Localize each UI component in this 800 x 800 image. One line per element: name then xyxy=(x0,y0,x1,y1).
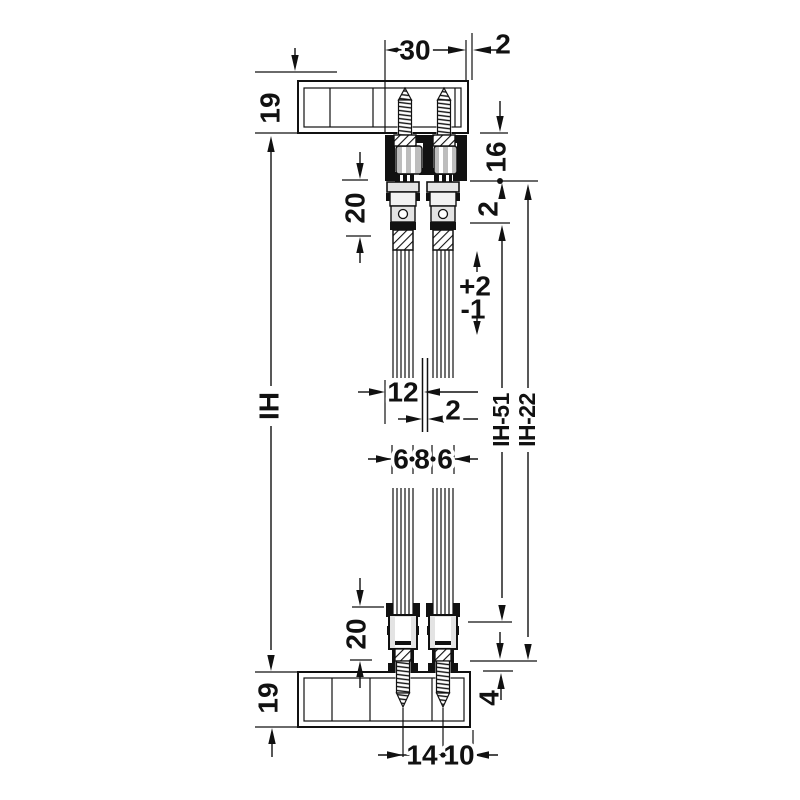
arrow-down-icon xyxy=(496,643,503,659)
dim-inner-height: IH xyxy=(254,136,285,671)
dim-track-height: 16 xyxy=(480,101,512,184)
bottom-screw-left xyxy=(395,649,411,708)
dim-label-track-width: 30 xyxy=(399,35,430,66)
arrow-down-icon xyxy=(356,163,363,179)
dim-dot-terminator xyxy=(440,752,445,757)
dim-label-inner-height: IH xyxy=(254,392,285,420)
dim-bottom-inset: 4 xyxy=(474,632,514,706)
dim-label-screw-spacing: 14 xyxy=(406,740,438,771)
dim-height-adjustment: +2 -1 xyxy=(459,251,491,335)
dim-label-bottom-panel-thickness: 19 xyxy=(253,682,284,713)
arrow-left-icon xyxy=(473,751,489,758)
dim-glass-spacing: 6 8 6 xyxy=(368,444,478,475)
section-drawing: 30 2 19 IH 19 xyxy=(0,0,800,800)
arrow-right-icon xyxy=(369,388,385,395)
dim-label-top-panel-thickness: 19 xyxy=(255,92,286,123)
arrow-right-icon xyxy=(387,751,403,758)
glass-panel-upper-left xyxy=(393,250,413,378)
arrow-up-icon xyxy=(498,225,505,241)
arrow-up-icon xyxy=(356,661,363,677)
arrow-left-icon xyxy=(424,388,440,395)
arrow-right-icon xyxy=(376,455,392,462)
dim-label-glass-right: 6 xyxy=(437,444,453,475)
glass-clamp-left xyxy=(386,182,420,250)
dim-label-track-height: 16 xyxy=(481,141,512,172)
arrow-up-icon xyxy=(356,237,363,253)
bottom-screw-right xyxy=(435,649,451,708)
dim-bottom-panel-thickness: 19 xyxy=(253,682,284,757)
arrow-right-icon xyxy=(448,46,466,54)
dim-top-panel-thickness: 19 xyxy=(255,48,299,124)
dim-label-adjust-minus: -1 xyxy=(461,294,486,325)
top-panel xyxy=(255,72,468,133)
arrow-right-icon xyxy=(406,415,422,422)
glass-panel-upper-right xyxy=(433,250,453,378)
dim-label-door-thickness: 12 xyxy=(387,377,418,408)
glass-clamp-right xyxy=(426,182,460,250)
arrow-up-icon xyxy=(473,251,480,267)
dim-label-ih-minus-22: IH-22 xyxy=(514,393,540,447)
dim-label-top-profile-height: 20 xyxy=(340,192,371,223)
dim-label-track-bottom-gap: 2 xyxy=(473,201,504,217)
arrow-up-icon xyxy=(498,183,505,199)
arrow-down-icon xyxy=(498,605,505,621)
arrow-up-icon xyxy=(497,673,504,689)
door-joint-lines xyxy=(423,358,428,432)
glass-panel-lower-left xyxy=(393,488,413,618)
arrow-down-icon xyxy=(496,116,503,132)
dim-label-wall-gap-top: 2 xyxy=(495,29,511,60)
dim-label-door-gap: 2 xyxy=(445,395,461,426)
arrow-down-icon xyxy=(524,644,531,660)
arrow-left-icon xyxy=(454,455,470,462)
arrow-up-icon xyxy=(268,728,275,744)
dim-label-bottom-inset: 4 xyxy=(474,690,505,706)
arrow-down-icon xyxy=(291,55,298,71)
dim-label-glass-mid: 8 xyxy=(414,444,430,475)
dim-wall-gap-top: 2 xyxy=(472,29,511,81)
arrow-up-icon xyxy=(267,136,274,152)
arrow-down-icon xyxy=(356,590,363,606)
dim-label-ih-minus-51: IH-51 xyxy=(488,392,514,446)
glass-panel-lower-right xyxy=(433,488,453,618)
arrow-down-icon xyxy=(267,655,274,671)
dim-label-edge-distance: 10 xyxy=(443,740,474,771)
arrow-up-icon xyxy=(524,184,531,200)
arrow-left-icon xyxy=(473,46,491,54)
arrow-left-icon xyxy=(428,415,444,422)
dim-label-glass-left: 6 xyxy=(393,444,409,475)
dim-label-bottom-profile-height: 20 xyxy=(341,618,372,649)
technical-drawing-canvas: 30 2 19 IH 19 xyxy=(0,0,800,800)
dim-dot-terminator xyxy=(430,456,435,461)
dim-dot-terminator xyxy=(409,456,414,461)
dim-top-profile-height: 20 xyxy=(340,152,372,263)
arrow-down-icon xyxy=(473,321,480,335)
